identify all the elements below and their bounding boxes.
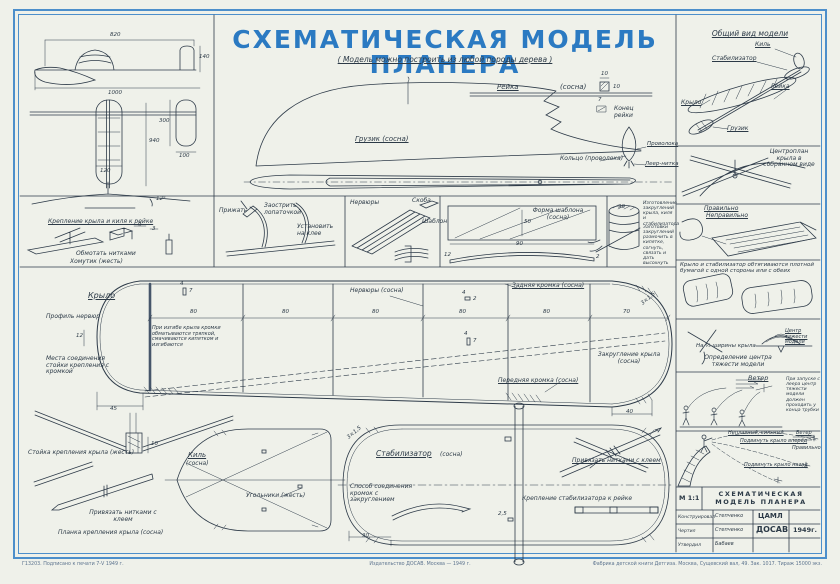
dim-300: 300 <box>159 118 170 124</box>
rail-end-label: Конец рейки <box>614 106 646 119</box>
panel2-caption: Центроплан крыла в собранном виде <box>760 149 818 169</box>
page-title: СХЕМАТИЧЕСКАЯ МОДЕЛЬ ПЛАНЕРА <box>215 27 675 77</box>
dim-120: 120 <box>100 168 111 174</box>
block-org1: ЦАМЛ <box>758 513 783 521</box>
rail-label: Рейка <box>497 84 519 92</box>
panel6-wind-label: Ветер <box>748 375 768 382</box>
dim-wing-80b: 80 <box>282 309 289 315</box>
ring-label: Кольцо (проволока) <box>560 156 623 163</box>
p1-rail-label: Рейка <box>771 84 790 91</box>
panel6-note: При запуске с леера центр тяжести модели… <box>786 377 820 413</box>
dim-template-50: 50 <box>524 219 531 225</box>
dim-cylinder-90: 90 <box>618 204 625 210</box>
dim-100: 100 <box>179 153 190 159</box>
stab-attach-label: Крепление стабилизатора к рейке <box>522 496 632 503</box>
footer-right: Фабрика детской книги Детгиза. Москва, С… <box>593 563 822 568</box>
sharpen-label: Заострить лопаточкой <box>264 203 306 216</box>
dim-dihedral-angle: 12° <box>156 196 166 202</box>
panel5-caption: Определение центра тяжести модели <box>700 355 776 368</box>
dim-wing-45: 45 <box>110 406 117 412</box>
panel5-cg-label: Центр тяжести модели <box>785 329 821 346</box>
dim-wing-12: 12 <box>76 333 83 339</box>
sec3-4: 4 <box>464 331 468 337</box>
dim-1000: 1000 <box>108 90 122 96</box>
dim-stab-25: 2,5 <box>498 511 507 517</box>
sec2-2: 2 <box>473 296 477 302</box>
dim-wing-40: 40 <box>626 409 633 415</box>
block-row1-value: Степченко <box>715 514 743 520</box>
template-label: Шаблон <box>422 219 447 226</box>
attach-clamp-label: Хомутик (жесть) <box>70 259 123 266</box>
wing-profile-label: Профиль нервюр <box>46 314 100 321</box>
dim-rail-10b: 10 <box>613 84 620 90</box>
block-row3-label: Утвердил <box>678 543 701 548</box>
p1-stab-label: Стабилизатор <box>712 56 757 63</box>
footer-left: Г13203. Подписано к печати 7-V 1949 г. <box>22 563 124 568</box>
wing-rounding-label: Закругление крыла (сосна) <box>596 352 662 365</box>
strut-post-label: Стойка крепления крыла (жесть) <box>28 450 134 457</box>
panel7-wind-label: Ветер <box>796 431 812 437</box>
p1-fin-label: Киль <box>755 42 771 49</box>
weight-label: Грузик (сосна) <box>355 136 409 144</box>
block-year: 1949г. <box>793 527 817 534</box>
dim-wing-70: 70 <box>623 309 630 315</box>
dim-stab-30: 30 <box>362 533 369 539</box>
dim-820: 820 <box>110 32 121 38</box>
block-row2-label: Чертил <box>678 529 696 534</box>
page-subtitle: ( Модель можно построить из любой породы… <box>215 56 675 64</box>
wing-title: Крыло <box>88 292 115 301</box>
wing-joint-note: Места соединения стойки крепления с кром… <box>46 356 110 376</box>
block-row3-value: Бабаев <box>715 542 734 548</box>
dim-wing-80d: 80 <box>459 309 466 315</box>
ribs-label: Нервюры <box>350 200 379 207</box>
scale-label: М 1:1 <box>679 495 699 502</box>
glue-label: Установить на клее <box>297 224 339 237</box>
dim-dihedral-10: 10 <box>151 441 158 447</box>
sec2-4: 4 <box>462 290 466 296</box>
wing-front-edge-label: Передняя кромка (сосна) <box>498 378 578 385</box>
strut-plank-label: Планка крепления крыла (сосна) <box>58 530 163 537</box>
sec1-4: 4 <box>180 281 184 287</box>
dim-9: 9 <box>138 222 142 228</box>
dim-wing-80e: 80 <box>543 309 550 315</box>
wing-bend-note: При изгибе крыла кромки обматываются тря… <box>152 326 244 348</box>
p1-weight-label: Грузик <box>727 126 748 133</box>
block-title-line2: МОДЕЛЬ ПЛАНЕРА <box>703 499 819 507</box>
panel4-text: Крыло и стабилизатор обтягиваются плотно… <box>680 262 820 274</box>
rail-material: (сосна) <box>560 84 586 92</box>
block-row1-label: Конструировал <box>678 515 715 520</box>
wing-rear-edge-label: Задняя кромка (сосна) <box>512 283 584 290</box>
dim-strip-12: 12 <box>444 252 451 258</box>
dim-rail-7: 7 <box>598 97 602 103</box>
sec3-7: 7 <box>473 338 477 344</box>
strut-tie-label: Привязать нитками с клеем <box>88 510 158 523</box>
attach-wrap-label: Обмотать нитками <box>76 251 136 258</box>
dim-template-90: 90 <box>516 241 523 247</box>
template-shape-label: Форма шаблона (сосна) <box>528 208 588 221</box>
fin-title: Киль <box>188 452 206 460</box>
panel7-fix1-label: Подвинуть крыло вперёд <box>740 439 807 445</box>
panel1-title: Общий вид модели <box>690 30 810 38</box>
press-label: Прижать <box>219 208 247 215</box>
dim-wing-80a: 80 <box>190 309 197 315</box>
sec1-7: 7 <box>189 288 193 294</box>
footer-center: Издательство ДОСАВ. Москва — 1949 г. <box>270 563 570 568</box>
dim-strip-2: 2 <box>596 254 600 260</box>
panel7-bad-label: Неплавный, сильный <box>728 431 784 437</box>
dim-rail-10a: 10 <box>601 71 608 77</box>
rounding-title: Изготовление закруглений крыла, киля и с… <box>643 201 675 227</box>
fin-material: (сосна) <box>186 461 209 468</box>
block-org2: ДОСАВ <box>756 526 788 535</box>
blueprint-sheet: СХЕМАТИЧЕСКАЯ МОДЕЛЬ ПЛАНЕРА ( Модель мо… <box>0 0 840 584</box>
p1-wing-label: Крыло <box>681 100 701 107</box>
block-row2-value: Степченко <box>715 528 743 534</box>
dim-140: 140 <box>199 54 210 60</box>
panel5-third-label: На ⅓ ширины крыла <box>696 343 756 349</box>
brace-label: Скоба <box>412 198 431 205</box>
dim-wing-80c: 80 <box>372 309 379 315</box>
stab-join-label: Способ соединения кромок с закруглением <box>350 484 414 504</box>
panel7-fix2-label: Подвинуть крыло назад <box>744 463 808 469</box>
wing-ribs-label: Нервюры (сосна) <box>350 288 404 295</box>
dim-3: 3 <box>152 226 156 232</box>
fin-corners-label: Угольники (жесть) <box>246 493 305 500</box>
dim-940: 940 <box>149 138 160 144</box>
rounding-text: Заготовки закруглений размочить в кипятк… <box>643 225 675 266</box>
towline-label: Леер-нитка <box>645 161 678 167</box>
stab-material: (сосна) <box>440 452 463 459</box>
stab-title: Стабилизатор <box>376 450 432 458</box>
panel7-ok-label: Правильно <box>792 446 821 452</box>
wire-label: Проволока <box>647 141 678 147</box>
panel3-incorrect: Неправильно <box>706 213 748 220</box>
stab-tie-label: Привязать нитками с клеем <box>572 458 661 465</box>
